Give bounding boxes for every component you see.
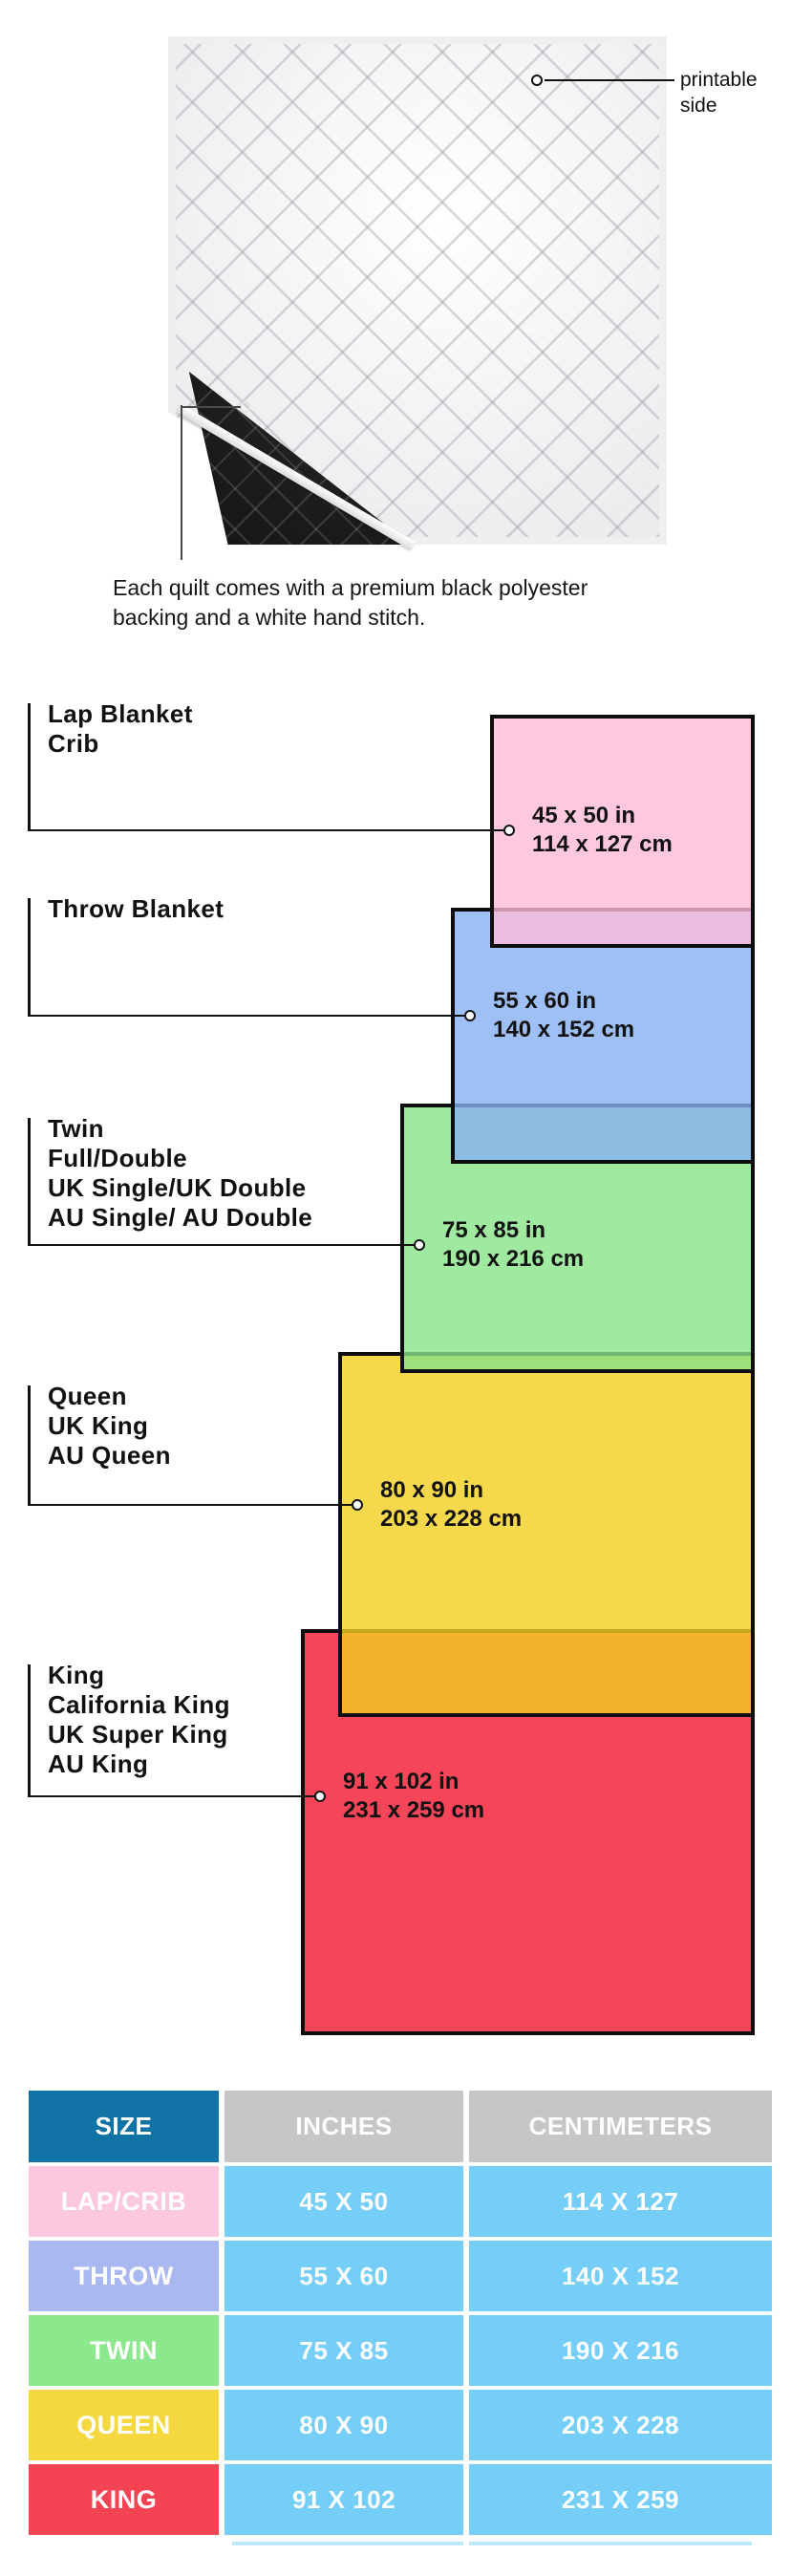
table-row-queen-inches: 80 X 90 (224, 2390, 463, 2460)
label-line: UK King (48, 1411, 171, 1441)
dimension-marker-king-icon (314, 1791, 326, 1802)
label-line: Full/Double (48, 1144, 312, 1173)
leader-tick-king (28, 1664, 31, 1797)
dimensions-lap: 45 x 50 in 114 x 127 cm (532, 802, 673, 859)
table-row-king-cm: 231 X 259 (469, 2464, 772, 2535)
printable-side-leader-line (545, 79, 674, 82)
leader-line-queen (28, 1504, 357, 1507)
quilt-size-chart-infographic: printable side Each quilt comes with a p… (0, 0, 791, 2576)
table-row-twin-size: TWIN (29, 2315, 219, 2386)
quilt-product-image (168, 36, 667, 545)
label-line: AU King (48, 1750, 230, 1779)
dimension-marker-twin-icon (414, 1239, 425, 1251)
table-row-throw-inches: 55 X 60 (224, 2241, 463, 2311)
leader-line-twin (28, 1244, 419, 1247)
table-row-queen-size: QUEEN (29, 2390, 219, 2460)
label-line: Throw Blanket (48, 894, 224, 924)
table-row-queen-cm: 203 X 228 (469, 2390, 772, 2460)
section-label-throw: Throw Blanket (48, 894, 224, 924)
leader-tick-throw (28, 898, 31, 1017)
dimension-inches: 91 x 102 in (343, 1768, 484, 1796)
table-row-lap-cm: 114 X 127 (469, 2166, 772, 2237)
table-row-twin-cm: 190 X 216 (469, 2315, 772, 2386)
quilt-caption-line2: backing and a white hand stitch. (113, 603, 588, 633)
table-row-lap-inches: 45 X 50 (224, 2166, 463, 2237)
section-label-twin: Twin Full/Double UK Single/UK Double AU … (48, 1114, 312, 1233)
dimension-cm: 190 x 216 cm (442, 1245, 584, 1274)
leader-line-lap (28, 829, 509, 832)
label-line: California King (48, 1690, 230, 1720)
dimensions-king: 91 x 102 in 231 x 259 cm (343, 1768, 484, 1825)
section-label-king: King California King UK Super King AU Ki… (48, 1661, 230, 1779)
dimensions-twin: 75 x 85 in 190 x 216 cm (442, 1216, 584, 1274)
table-bottom-edge-strip (232, 2542, 463, 2545)
label-line: Crib (48, 729, 193, 759)
leader-line-king (28, 1795, 320, 1798)
dimension-cm: 231 x 259 cm (343, 1796, 484, 1825)
black-backing-leader-line-h (182, 406, 241, 408)
printable-side-label: printable side (680, 67, 781, 118)
label-line: AU Single/ AU Double (48, 1203, 312, 1233)
dimension-marker-lap-icon (503, 825, 515, 836)
table-row-lap-size: LAP/CRIB (29, 2166, 219, 2237)
table-row-king-inches: 91 X 102 (224, 2464, 463, 2535)
dimension-inches: 55 x 60 in (493, 987, 634, 1016)
section-label-lap-crib: Lap Blanket Crib (48, 699, 193, 759)
dimension-inches: 45 x 50 in (532, 802, 673, 830)
label-line: Twin (48, 1114, 312, 1144)
black-backing-leader-line-v (181, 405, 182, 560)
table-bottom-edge-strip (469, 2542, 752, 2545)
size-rect-queen (338, 1352, 755, 1717)
leader-tick-twin (28, 1118, 31, 1246)
dimension-inches: 75 x 85 in (442, 1216, 584, 1245)
label-line: Queen (48, 1382, 171, 1411)
leader-tick-queen (28, 1385, 31, 1506)
dimension-marker-queen-icon (352, 1499, 363, 1511)
label-line: Lap Blanket (48, 699, 193, 729)
dimension-cm: 114 x 127 cm (532, 830, 673, 859)
table-header-centimeters: CENTIMETERS (469, 2091, 772, 2162)
table-row-king-size: KING (29, 2464, 219, 2535)
table-row-throw-size: THROW (29, 2241, 219, 2311)
leader-tick-lap (28, 703, 31, 831)
label-line: UK Single/UK Double (48, 1173, 312, 1203)
dimension-cm: 140 x 152 cm (493, 1016, 634, 1044)
label-line: UK Super King (48, 1720, 230, 1750)
printable-side-marker-icon (531, 75, 543, 86)
dimensions-queen: 80 x 90 in 203 x 228 cm (380, 1476, 522, 1534)
table-row-twin-inches: 75 X 85 (224, 2315, 463, 2386)
label-line: King (48, 1661, 230, 1690)
dimension-inches: 80 x 90 in (380, 1476, 522, 1505)
table-row-throw-cm: 140 X 152 (469, 2241, 772, 2311)
leader-line-throw (28, 1015, 470, 1018)
dimensions-throw: 55 x 60 in 140 x 152 cm (493, 987, 634, 1044)
dimension-marker-throw-icon (464, 1010, 476, 1021)
table-header-size: SIZE (29, 2091, 219, 2162)
quilt-caption: Each quilt comes with a premium black po… (113, 573, 588, 633)
dimension-cm: 203 x 228 cm (380, 1505, 522, 1534)
table-header-inches: INCHES (224, 2091, 463, 2162)
section-label-queen: Queen UK King AU Queen (48, 1382, 171, 1470)
label-line: AU Queen (48, 1441, 171, 1470)
quilt-caption-line1: Each quilt comes with a premium black po… (113, 573, 588, 603)
